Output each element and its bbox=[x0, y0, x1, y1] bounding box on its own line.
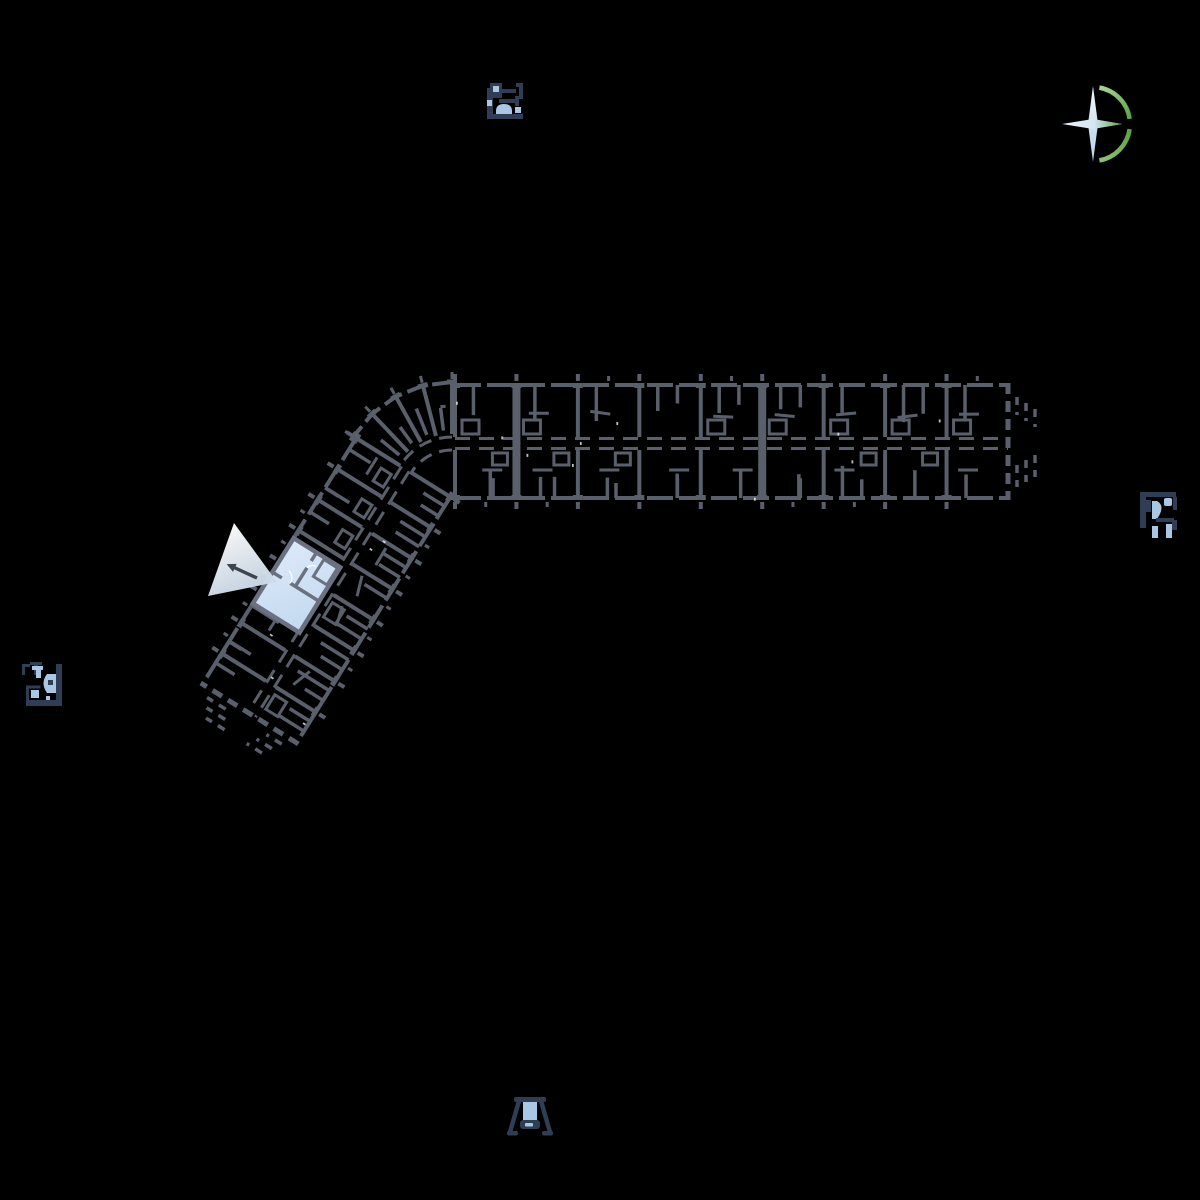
building-plan-marker-left[interactable] bbox=[22, 662, 62, 706]
swing-icon bbox=[507, 1097, 553, 1136]
compass-needle-east-green bbox=[1095, 120, 1122, 129]
southwest-wing bbox=[179, 428, 462, 772]
compass-arc-bottom bbox=[1099, 129, 1129, 160]
building-plan-marker-right[interactable] bbox=[1140, 492, 1177, 538]
site-plan-svg bbox=[0, 0, 1200, 1200]
mini-floorplan-icon bbox=[1140, 492, 1177, 538]
mini-floorplan-icon bbox=[487, 83, 523, 119]
mini-floorplan-icon bbox=[22, 662, 62, 706]
compass-arc-top bbox=[1099, 88, 1129, 119]
compass-rose bbox=[1062, 86, 1130, 162]
building-plan-marker-top[interactable] bbox=[487, 83, 523, 119]
floorplan bbox=[179, 372, 1035, 772]
east-wing bbox=[450, 374, 1035, 509]
site-plan-canvas bbox=[0, 0, 1200, 1200]
playground-swing-marker[interactable] bbox=[507, 1097, 553, 1136]
